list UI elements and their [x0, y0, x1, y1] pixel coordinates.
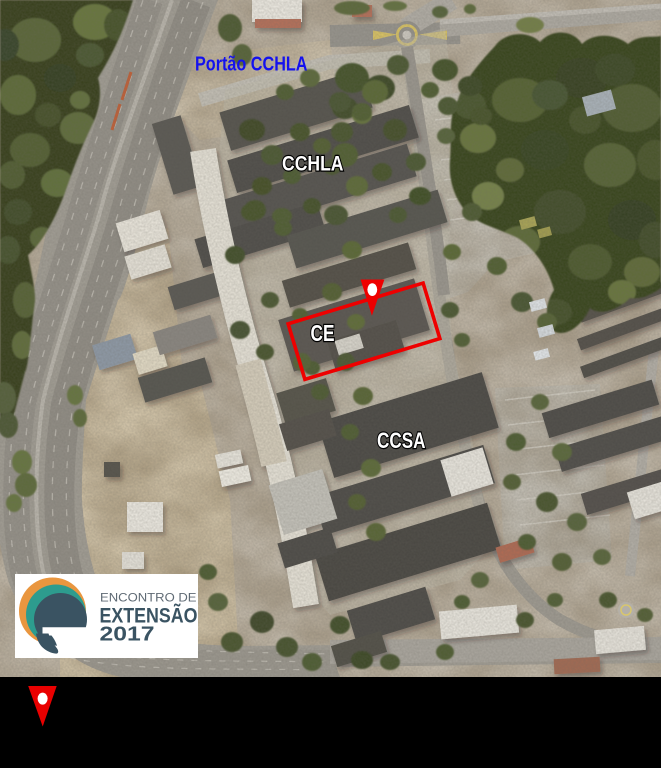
svg-text:CCHLA: CCHLA — [282, 153, 344, 176]
svg-text:Portão CCHLA: Portão CCHLA — [195, 54, 308, 76]
svg-text:CCSA: CCSA — [377, 428, 426, 453]
svg-text:2017: 2017 — [100, 624, 155, 646]
svg-text:CE: CE — [311, 320, 335, 346]
